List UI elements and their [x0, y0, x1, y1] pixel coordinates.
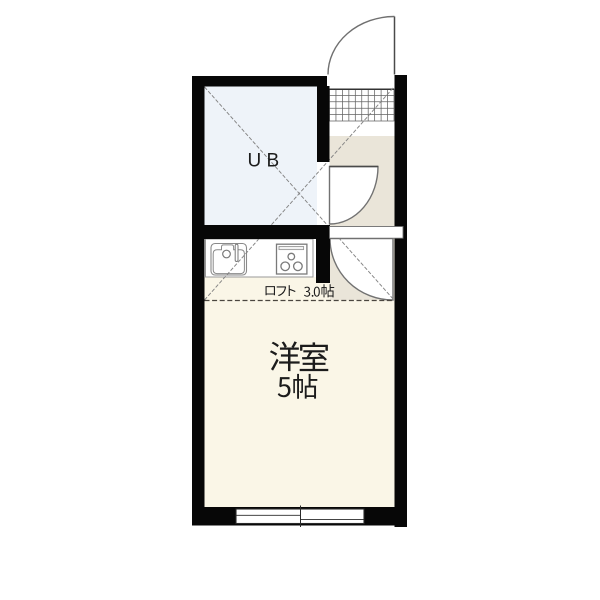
svg-text:U B: U B	[248, 150, 280, 171]
